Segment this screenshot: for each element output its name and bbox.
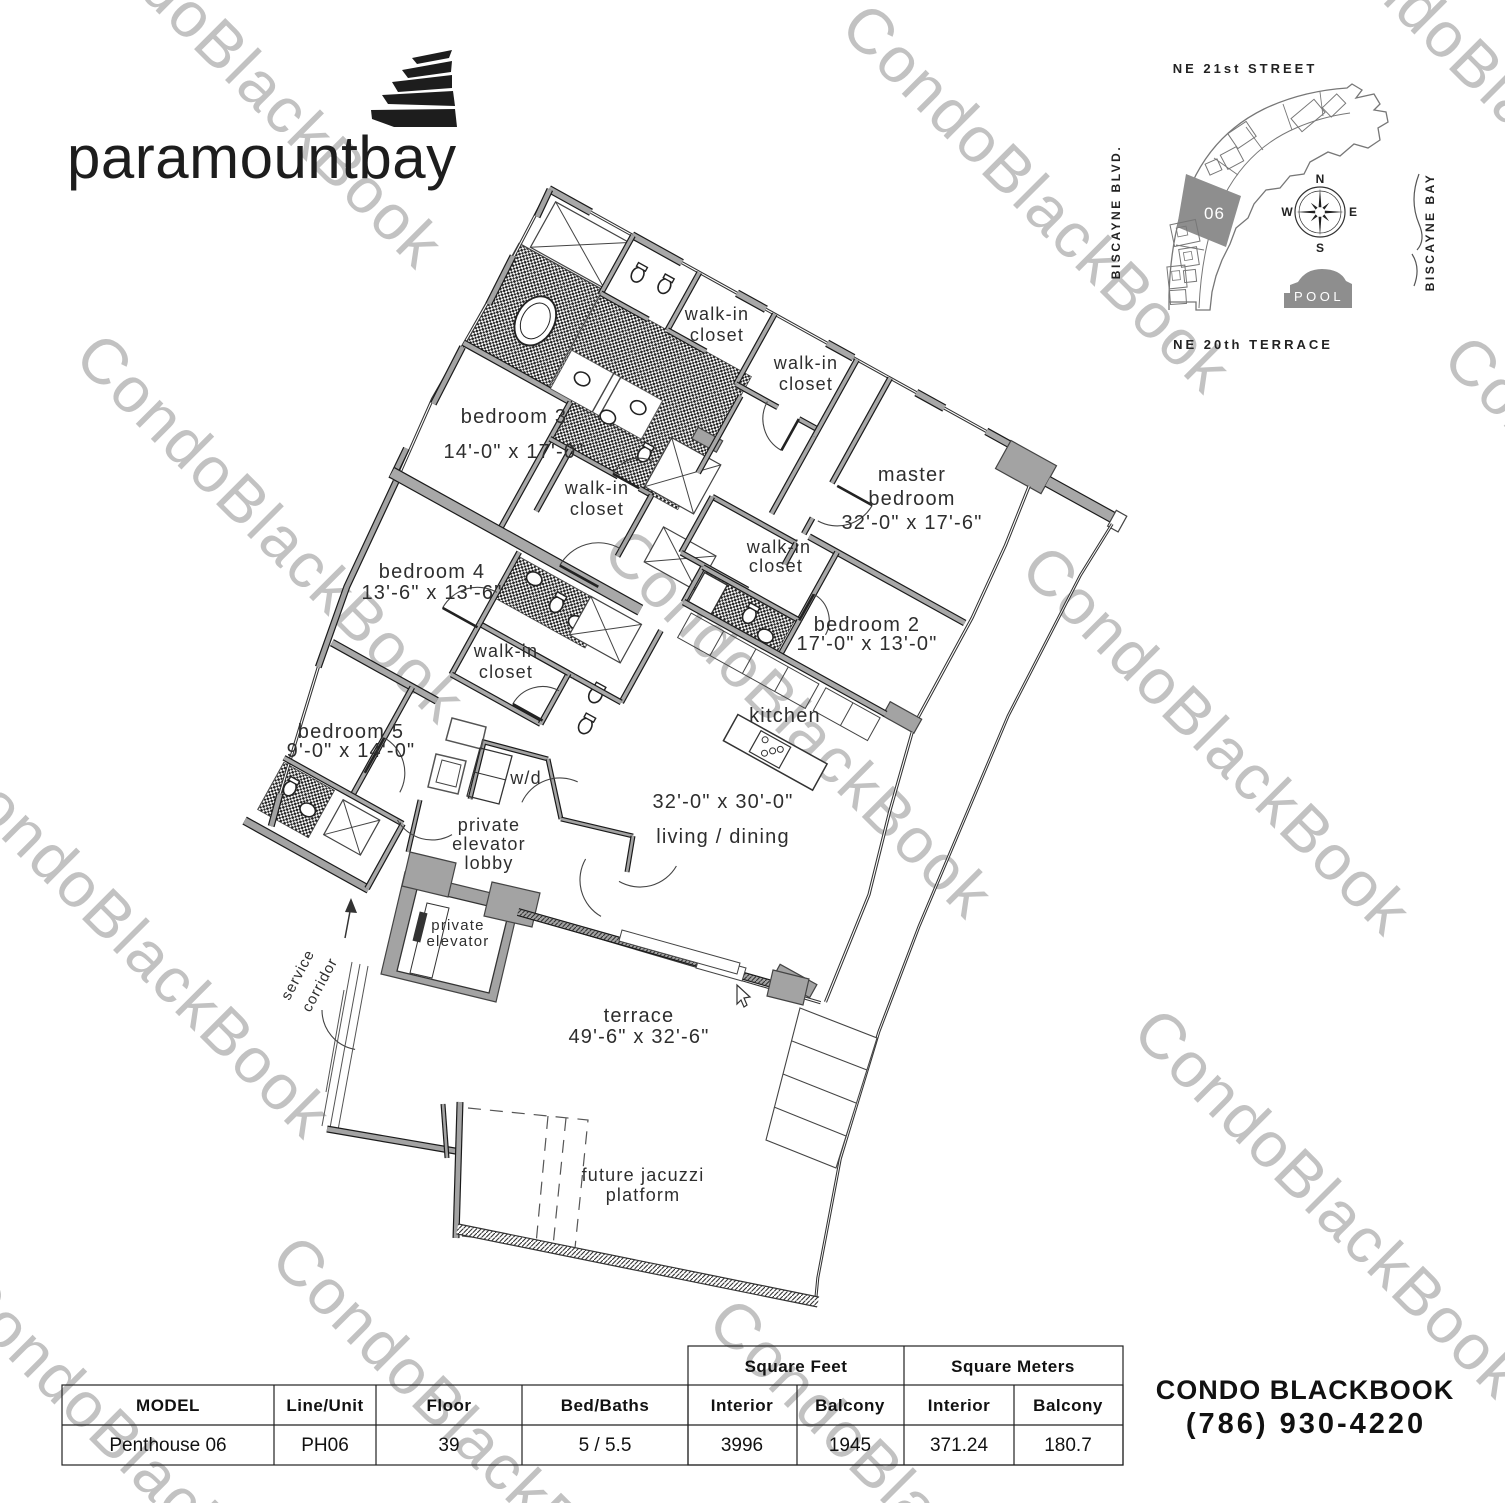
svg-text:POOL: POOL [1294, 289, 1344, 304]
svg-text:bedroom: bedroom [868, 488, 955, 510]
svg-text:closet: closet [749, 556, 803, 576]
svg-text:master: master [878, 464, 946, 486]
svg-text:lobby: lobby [464, 853, 513, 873]
svg-text:walk-in: walk-in [773, 353, 838, 373]
svg-text:future jacuzzi: future jacuzzi [582, 1165, 705, 1185]
svg-text:Square Feet: Square Feet [745, 1357, 848, 1376]
svg-text:NE 21st STREET: NE 21st STREET [1173, 61, 1318, 76]
svg-text:Interior: Interior [928, 1396, 991, 1415]
svg-text:bedroom 3: bedroom 3 [461, 406, 567, 428]
svg-text:closet: closet [570, 499, 624, 519]
svg-text:terrace: terrace [604, 1005, 675, 1027]
svg-text:(786) 930-4220: (786) 930-4220 [1186, 1408, 1426, 1440]
svg-text:17'-0" x 13'-0": 17'-0" x 13'-0" [796, 633, 937, 655]
svg-text:Line/Unit: Line/Unit [286, 1396, 363, 1415]
svg-text:N: N [1316, 172, 1325, 186]
svg-text:9'-0" x 14'-0": 9'-0" x 14'-0" [287, 740, 416, 762]
svg-text:NE 20th TERRACE: NE 20th TERRACE [1173, 337, 1333, 352]
svg-text:E: E [1349, 205, 1357, 219]
svg-text:PH06: PH06 [301, 1435, 349, 1456]
svg-text:Interior: Interior [711, 1396, 774, 1415]
svg-text:Square Meters: Square Meters [951, 1357, 1075, 1376]
svg-text:49'-6" x 32'-6": 49'-6" x 32'-6" [568, 1026, 709, 1048]
svg-text:walk-in: walk-in [746, 537, 811, 557]
svg-text:paramountbay: paramountbay [67, 124, 457, 191]
svg-text:living / dining: living / dining [656, 826, 790, 848]
svg-text:S: S [1316, 241, 1324, 255]
svg-text:private: private [431, 917, 484, 934]
svg-text:walk-in: walk-in [564, 478, 629, 498]
svg-text:walk-in: walk-in [473, 641, 538, 661]
svg-text:CONDO BLACKBOOK: CONDO BLACKBOOK [1156, 1375, 1455, 1405]
svg-text:13'-6" x 13'-6": 13'-6" x 13'-6" [361, 582, 502, 604]
svg-text:Floor: Floor [427, 1396, 472, 1415]
svg-text:w/d: w/d [509, 768, 542, 788]
svg-text:W: W [1281, 205, 1293, 219]
svg-text:BISCAYNE BLVD.: BISCAYNE BLVD. [1109, 145, 1123, 279]
svg-text:bedroom 4: bedroom 4 [379, 561, 485, 583]
svg-text:private: private [458, 815, 520, 835]
svg-text:180.7: 180.7 [1044, 1435, 1092, 1456]
svg-text:Bed/Baths: Bed/Baths [561, 1396, 650, 1415]
svg-text:platform: platform [606, 1185, 681, 1205]
svg-text:elevator: elevator [427, 933, 490, 950]
svg-text:walk-in: walk-in [684, 304, 749, 324]
svg-text:kitchen: kitchen [749, 705, 821, 727]
svg-text:39: 39 [438, 1435, 459, 1456]
svg-text:32'-0" x 30'-0": 32'-0" x 30'-0" [652, 791, 793, 813]
svg-text:5 / 5.5: 5 / 5.5 [579, 1435, 632, 1456]
svg-text:1945: 1945 [829, 1435, 871, 1456]
svg-text:elevator: elevator [452, 834, 526, 854]
svg-text:14'-0" x 17'-0": 14'-0" x 17'-0" [443, 441, 584, 463]
svg-text:32'-0" x 17'-6": 32'-0" x 17'-6" [841, 512, 982, 534]
svg-text:BISCAYNE BAY: BISCAYNE BAY [1423, 173, 1437, 291]
svg-text:Balcony: Balcony [815, 1396, 885, 1415]
svg-text:06: 06 [1204, 204, 1225, 223]
svg-text:closet: closet [779, 374, 833, 394]
svg-text:MODEL: MODEL [136, 1396, 200, 1415]
svg-text:closet: closet [690, 325, 744, 345]
svg-text:371.24: 371.24 [930, 1435, 989, 1456]
svg-text:Penthouse 06: Penthouse 06 [109, 1435, 226, 1456]
svg-text:Balcony: Balcony [1033, 1396, 1103, 1415]
svg-text:3996: 3996 [721, 1435, 763, 1456]
svg-text:closet: closet [479, 662, 533, 682]
